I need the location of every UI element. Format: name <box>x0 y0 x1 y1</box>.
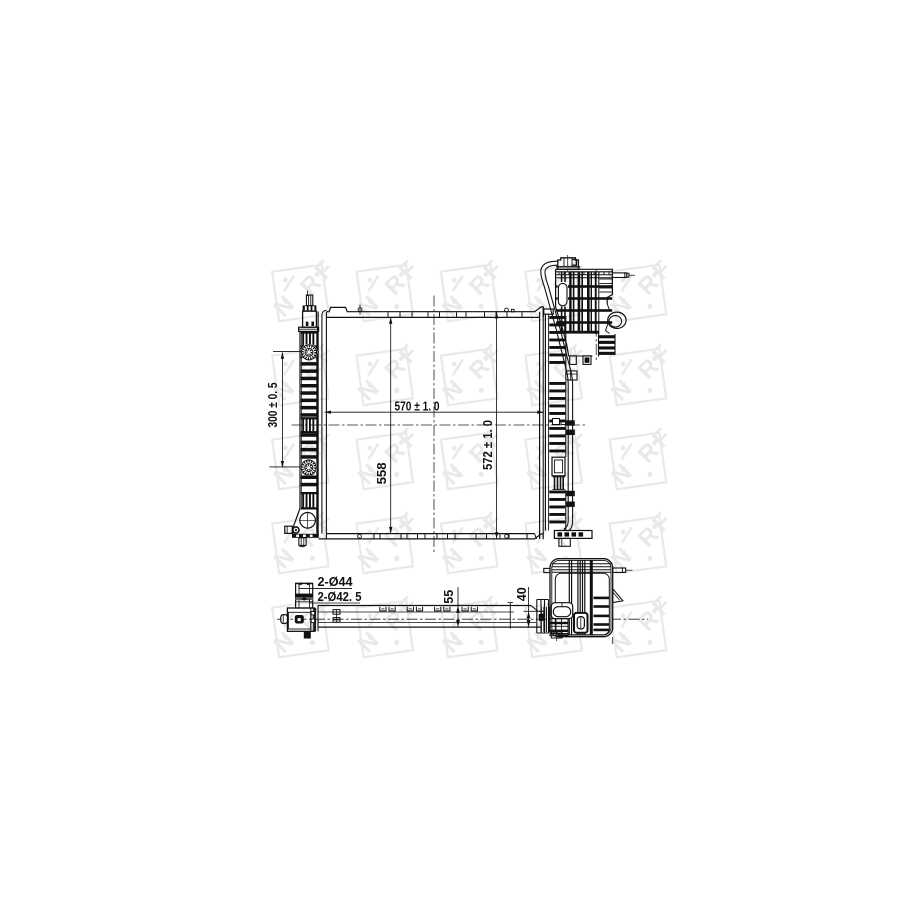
svg-text:572 ± 1. 0: 572 ± 1. 0 <box>481 420 495 470</box>
svg-text:558: 558 <box>375 462 389 484</box>
svg-text:2-Ø44: 2-Ø44 <box>318 575 353 589</box>
svg-text:300 ± 0. 5: 300 ± 0. 5 <box>266 382 280 427</box>
svg-text:2-Ø42. 5: 2-Ø42. 5 <box>318 590 362 604</box>
svg-text:40: 40 <box>515 587 529 601</box>
svg-text:55: 55 <box>442 590 456 604</box>
svg-text:570 ± 1. 0: 570 ± 1. 0 <box>395 399 440 413</box>
